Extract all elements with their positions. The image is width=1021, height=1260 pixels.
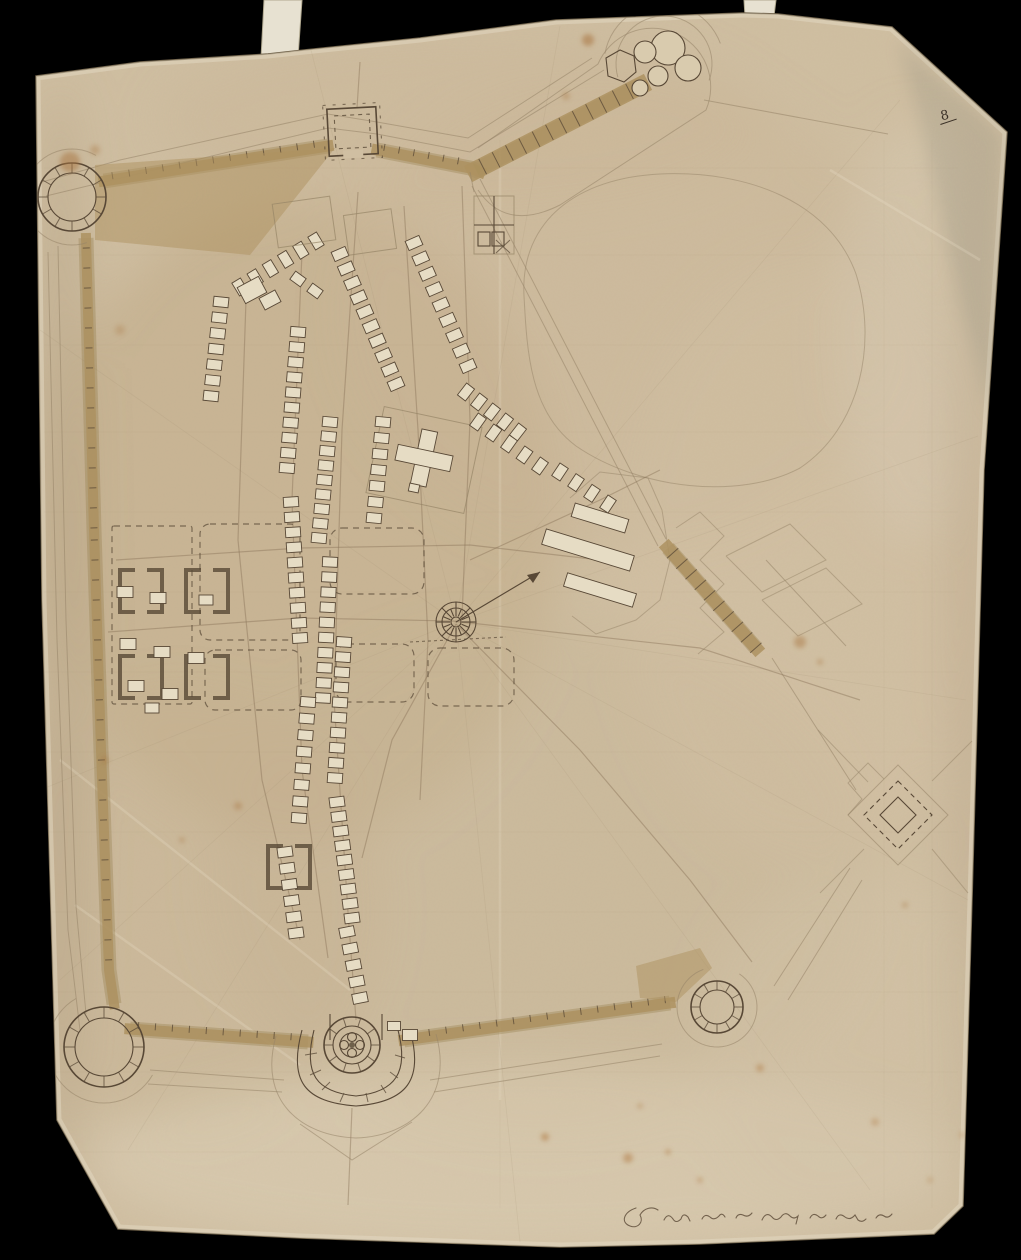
hanging-tab [261,0,302,58]
plan-svg: 8 [0,0,1021,1260]
